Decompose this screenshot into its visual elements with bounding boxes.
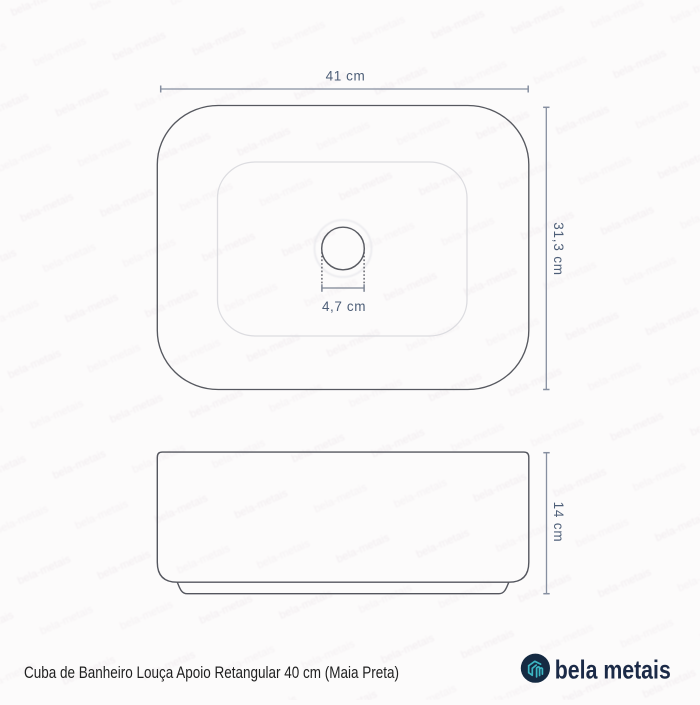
svg-text:31,3 cm: 31,3 cm: [551, 222, 566, 276]
svg-text:4,7 cm: 4,7 cm: [322, 299, 366, 314]
svg-text:41 cm: 41 cm: [326, 69, 366, 84]
svg-text:Cuba de Banheiro Louça Apoio R: Cuba de Banheiro Louça Apoio Retangular …: [24, 663, 399, 682]
svg-text:14 cm: 14 cm: [551, 502, 566, 543]
svg-text:bela metais: bela metais: [555, 655, 671, 685]
